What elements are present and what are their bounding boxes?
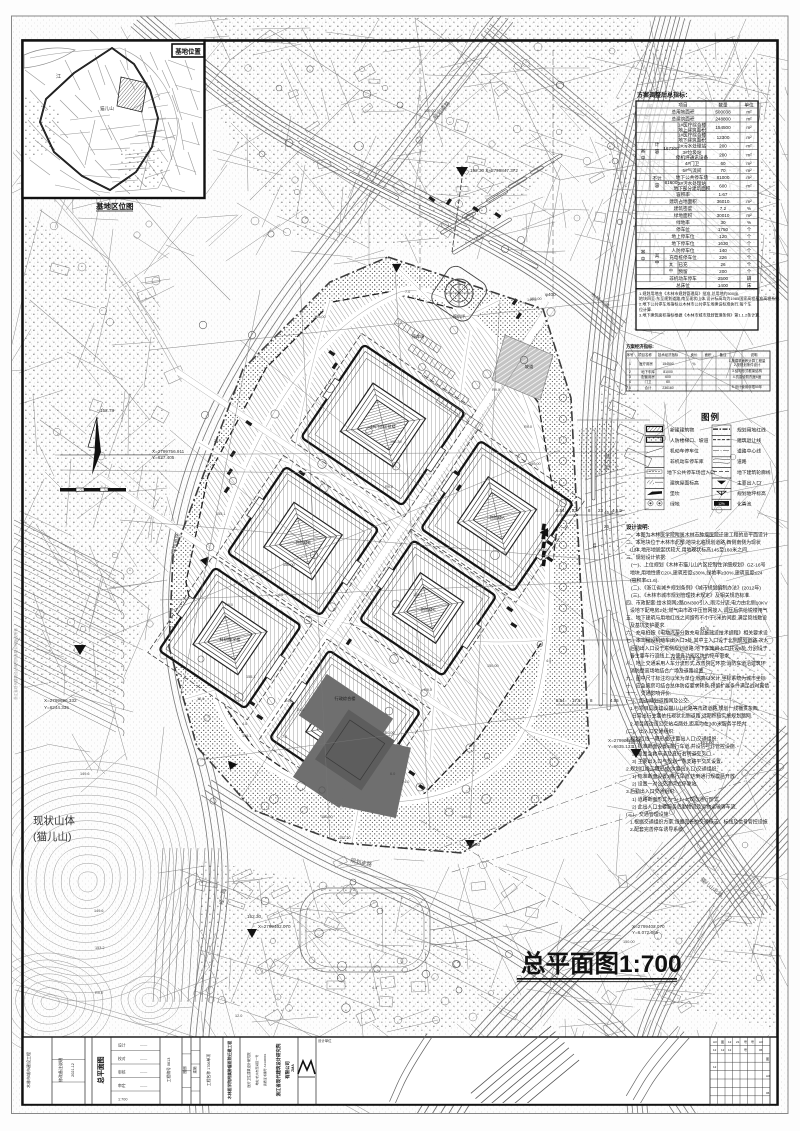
svg-text:木林市城市建设工程: 木林市城市建设工程 — [25, 1052, 31, 1088]
svg-text:2021.12: 2021.12 — [71, 1063, 75, 1077]
svg-text:26: 26 — [720, 262, 726, 267]
svg-text:150.00: 150.00 — [424, 109, 436, 113]
svg-text:(三)、交通管理设施:: (三)、交通管理设施: — [626, 811, 670, 818]
svg-text:4: 4 — [629, 380, 631, 384]
svg-text:2.规划红线二期形成(次要出入口)交通组织:: 2.规划红线二期形成(次要出入口)交通组织: — [626, 766, 718, 773]
svg-text:30: 30 — [720, 220, 726, 225]
svg-text:建筑退让线: 建筑退让线 — [737, 437, 761, 444]
svg-text:六、充电桩按《电动汽车分散充电设施建设技术规程》相关要求设: 六、充电桩按《电动汽车分散充电设施建设技术规程》相关要求设 — [626, 630, 768, 637]
svg-text:155.1: 155.1 — [216, 512, 226, 516]
svg-text:150.00: 150.00 — [623, 940, 635, 944]
svg-text:X=2799756.911: X=2799756.911 — [152, 449, 185, 454]
svg-text:5.设计使用年限50年: 5.设计使用年限50年 — [732, 384, 763, 389]
svg-text:地下公共停车场: 地下公共停车场 — [676, 174, 709, 181]
svg-text:个: 个 — [747, 241, 752, 246]
svg-text:2.按规划条件设计: 2.按规划条件设计 — [734, 362, 761, 367]
svg-text:R9.0: R9.0 — [524, 425, 532, 429]
svg-text:行政综合楼: 行政综合楼 — [335, 695, 356, 702]
svg-text:图例: 图例 — [701, 412, 720, 422]
svg-text:中: 中 — [655, 259, 660, 266]
svg-text:停车位: 停车位 — [676, 226, 690, 233]
svg-text:绿地面积: 绿地面积 — [674, 212, 693, 219]
svg-text:木林医学院附属肿瘤医院迁建工程: 木林医学院附属肿瘤医院迁建工程 — [227, 1041, 232, 1100]
svg-text:200: 200 — [719, 152, 727, 157]
svg-text:(一)、周边规划道路网及公交:: (一)、周边规划道路网及公交: — [626, 698, 689, 705]
svg-text:停车场: 停车场 — [412, 333, 425, 340]
svg-text:个: 个 — [747, 234, 752, 239]
svg-text:绿地: 绿地 — [670, 501, 680, 508]
svg-text:Y=6244.335: Y=6244.335 — [44, 705, 69, 710]
svg-text:m²: m² — [746, 135, 752, 140]
svg-text:12.0: 12.0 — [197, 697, 204, 701]
svg-text:基地位置: 基地位置 — [174, 47, 201, 56]
svg-text:6.0: 6.0 — [390, 772, 395, 776]
svg-text:21: 21 — [736, 1040, 740, 1044]
svg-text:150.00: 150.00 — [529, 462, 541, 466]
svg-text:住院楼C: 住院楼C — [420, 606, 436, 613]
svg-text:1.根据交通组织方案,设置完善的交通标志、标线及信号管控设施: 1.根据交通组织方案,设置完善的交通标志、标线及信号管控设施 — [630, 818, 768, 825]
svg-text:60: 60 — [720, 161, 726, 166]
svg-text:数量: 数量 — [718, 101, 728, 108]
svg-text:机动车停车位: 机动车停车位 — [670, 448, 699, 455]
svg-text:152.30: 152.30 — [339, 836, 351, 840]
svg-text:项目名称: 项目名称 — [638, 352, 652, 357]
svg-text:1:700: 1:700 — [118, 1098, 128, 1102]
svg-text:四、市政配套:给水管网2路DN300引入,雨污分流;电力由北: 四、市政配套:给水管网2路DN300引入,雨污分流;电力由北侧10KV — [626, 600, 768, 607]
svg-text:36010: 36010 — [717, 199, 730, 204]
svg-text:3.后勤出入口交通组织:: 3.后勤出入口交通组织: — [626, 788, 675, 795]
svg-text:m²: m² — [746, 199, 752, 204]
svg-text:一、本图为木林医学院附属木林市肿瘤医院迁建工程的总平面设计: 一、本图为木林医学院附属木林市肿瘤医院迁建工程的总平面设计 — [626, 532, 768, 539]
svg-text:图: 图 — [721, 1040, 724, 1044]
svg-text:3.地下建筑面积指标根据《木林市城市规划管理条例》第1.1.: 3.地下建筑面积指标根据《木林市城市规划管理条例》第1.1.2条计算. — [639, 311, 760, 317]
svg-text:12: 12 — [713, 1048, 717, 1052]
svg-text:1.规划用地由《木林市规划管理局》批准,总用地约500亩,: 1.规划用地由《木林市规划管理局》批准,总用地约500亩, — [639, 290, 739, 296]
svg-text:3.结构形式框架结构: 3.结构形式框架结构 — [732, 368, 763, 373]
svg-text:辆: 辆 — [747, 275, 752, 282]
svg-text:150.00: 150.00 — [383, 731, 395, 735]
svg-text:2.配套完善停车诱导系统.: 2.配套完善停车诱导系统. — [630, 826, 684, 833]
svg-text:道路: 道路 — [737, 458, 747, 465]
svg-text:7.0: 7.0 — [405, 290, 410, 294]
svg-text:12%: 12% — [718, 502, 725, 506]
svg-text:R9.0: R9.0 — [424, 688, 432, 692]
svg-text:图别: 图别 — [182, 1066, 187, 1074]
svg-text:工程名称 1706单项: 工程名称 1706单项 — [206, 1054, 211, 1086]
svg-text:2.项目周边设公交站点两处,距离均在300米服务半径内.: 2.项目周边设公交站点两处,距离均在300米服务半径内. — [630, 720, 748, 727]
svg-text:1.与项目同步建设猫儿山北路等市政道路,规划一线横贯东西,: 1.与项目同步建设猫儿山北路等市政道路,规划一线横贯东西, — [630, 705, 759, 712]
svg-text:总床位: 总床位 — [676, 282, 690, 289]
svg-text:149.6: 149.6 — [461, 815, 471, 819]
svg-text:中: 中 — [641, 154, 646, 161]
svg-text:日常出行主要依托现状北侧道路,远期积极实施规划路网.: 日常出行主要依托现状北侧道路,远期积极实施规划路网. — [632, 713, 752, 720]
svg-text:4.5: 4.5 — [546, 659, 551, 663]
svg-text:%: % — [747, 220, 751, 225]
svg-text:120: 120 — [719, 234, 727, 239]
svg-text:(二)、《浙江省城乡规划条例》《城市规划编制办法》(2012: (二)、《浙江省城乡规划条例》《城市规划编制办法》(2012年) — [631, 584, 761, 591]
svg-text:医疗卫生建筑设计研究院: 医疗卫生建筑设计研究院 — [246, 1052, 251, 1088]
svg-text:后勤出入口设于东侧规划道路;地下车库出入口共设6处,分别设于: 后勤出入口设于东侧规划道路;地下车库出入口共设6处,分别设于 — [630, 645, 768, 652]
svg-text:4#门卫: 4#门卫 — [685, 160, 700, 167]
svg-text:149.6: 149.6 — [527, 298, 537, 302]
svg-text:资质证书编号 A1330001: 资质证书编号 A1330001 — [262, 1053, 267, 1086]
svg-text:A3: A3 — [766, 1074, 770, 1078]
svg-text:1) 标准断面设置3条行车道,达到通行规模后开放.: 1) 标准断面设置3条行车道,达到通行规模后开放. — [632, 773, 736, 780]
svg-text:R9.0: R9.0 — [385, 485, 393, 489]
svg-text:1.规划红线一期形成(主要出入口)交通组织:: 1.规划红线一期形成(主要出入口)交通组织: — [626, 735, 718, 742]
svg-text:图: 图 — [766, 1057, 769, 1061]
svg-text:号: 号 — [751, 1039, 754, 1044]
svg-text:新建建筑物: 新建建筑物 — [670, 426, 694, 433]
svg-text:1) 道路断面形式为"1+1+1"双向通行形式.: 1) 道路断面形式为"1+1+1"双向通行形式. — [632, 796, 720, 803]
svg-text:三、规划设计依据:: 三、规划设计依据: — [626, 554, 666, 561]
svg-text:150.00: 150.00 — [321, 815, 333, 819]
svg-text:序号: 序号 — [627, 352, 634, 357]
svg-text:规划地坪标高: 规划地坪标高 — [737, 490, 766, 497]
svg-text:3: 3 — [629, 375, 631, 379]
svg-text:1) 标准断面设置3条行车道,并设信号灯管控设施.: 1) 标准断面设置3条行车道,并设信号灯管控设施. — [632, 743, 736, 750]
svg-text:152.30: 152.30 — [247, 914, 261, 919]
svg-text:堡坎: 堡坎 — [670, 490, 680, 497]
svg-text:技术经济指标: 技术经济指标 — [658, 352, 679, 357]
svg-text:5#气流间: 5#气流间 — [683, 167, 702, 174]
svg-text:地下公共停车场出入口: 地下公共停车场出入口 — [667, 469, 715, 476]
svg-text:非机动车停车库: 非机动车停车库 — [670, 458, 704, 465]
svg-text:m²: m² — [746, 109, 752, 114]
svg-text:建筑屋面标高: 建筑屋面标高 — [670, 479, 699, 486]
svg-text:7.0: 7.0 — [282, 735, 287, 739]
svg-text:建筑占地面积: 建筑占地面积 — [669, 198, 697, 205]
svg-text:门卫: 门卫 — [645, 379, 652, 384]
svg-text:个: 个 — [747, 269, 752, 274]
svg-text:地下停车位: 地下停车位 — [672, 240, 695, 247]
svg-text:(猫儿山): (猫儿山) — [33, 830, 72, 843]
svg-text:81000: 81000 — [717, 175, 730, 180]
svg-text:地块四至:东至规划道路,南至现状山体,设计标高均为1985国: 地块四至:东至规划道路,南至现状山体,设计标高均为1985国家高程基准高程系统. — [639, 295, 780, 301]
svg-text:7.2: 7.2 — [720, 206, 727, 211]
svg-text:4.抗震设防烈度6度: 4.抗震设防烈度6度 — [733, 374, 762, 379]
svg-text:m²: m² — [746, 168, 752, 173]
svg-text:149.6: 149.6 — [94, 909, 104, 913]
svg-text:个: 个 — [747, 248, 752, 253]
svg-text:154500: 154500 — [715, 125, 731, 130]
svg-text:中: 中 — [669, 267, 673, 273]
svg-text:医疗用房: 医疗用房 — [639, 361, 653, 366]
svg-text:号: 号 — [744, 1039, 747, 1044]
svg-text:23: 23 — [598, 508, 603, 513]
svg-text:人防停车位: 人防停车位 — [672, 247, 695, 254]
svg-text:2) 设置急救车道及直行右转道交叉口.: 2) 设置急救车道及直行右转道交叉口. — [632, 751, 712, 758]
svg-text:81000: 81000 — [663, 370, 673, 374]
svg-text:4.5: 4.5 — [278, 593, 283, 597]
svg-text:九、图中尺寸标注均以米为单位,标高以米计,坐标系统为城市坐标: 九、图中尺寸标注均以米为单位,标高以米计,坐标系统为城市坐标 — [626, 675, 766, 682]
svg-text:配套用房: 配套用房 — [641, 374, 655, 379]
svg-text:设计单位: 设计单位 — [318, 1038, 332, 1043]
svg-text:24.0: 24.0 — [214, 439, 221, 443]
svg-text:化粪池: 化粪池 — [737, 501, 752, 508]
svg-text:(二)、出入口交通组织:: (二)、出入口交通组织: — [626, 728, 675, 735]
svg-text:计: 计 — [655, 141, 660, 148]
svg-text:设计: 设计 — [118, 1043, 126, 1048]
svg-text:1: 1 — [629, 362, 631, 366]
svg-text:1750: 1750 — [718, 227, 729, 232]
svg-text:面积: 面积 — [705, 352, 712, 357]
svg-text:25: 25 — [604, 524, 610, 529]
svg-text:1400: 1400 — [718, 283, 729, 288]
svg-text:——: —— — [140, 1084, 148, 1088]
svg-text:23: 23 — [572, 508, 577, 513]
svg-text:猫儿山: 猫儿山 — [100, 105, 114, 112]
svg-text:位计算.: 位计算. — [639, 306, 652, 312]
svg-text:45.5: 45.5 — [700, 626, 709, 631]
svg-text:2) 此出入口主要服务后勤物流及污物运输等车流.: 2) 此出入口主要服务后勤物流及污物运输等车流. — [632, 803, 737, 810]
svg-text:12: 12 — [728, 1048, 732, 1052]
svg-text:号: 号 — [744, 1047, 747, 1052]
svg-text:非机动车停车: 非机动车停车 — [669, 275, 697, 282]
svg-text:科研教学楼: 科研教学楼 — [220, 636, 241, 643]
svg-text:X=2799402.070: X=2799402.070 — [632, 924, 665, 929]
svg-text:70: 70 — [720, 168, 726, 173]
svg-text:167300: 167300 — [663, 146, 679, 151]
svg-text:住院楼A: 住院楼A — [489, 514, 505, 521]
svg-text:人防楼梯口、坡道: 人防楼梯口、坡道 — [670, 437, 709, 444]
svg-text:A3: A3 — [759, 1040, 763, 1044]
svg-text:150.00: 150.00 — [283, 563, 295, 567]
svg-text:X=2799696.332: X=2799696.332 — [44, 698, 77, 703]
svg-text:1#门诊医技楼: 1#门诊医技楼 — [370, 423, 396, 430]
svg-text:预留: 预留 — [678, 268, 688, 275]
svg-text:说明: 说明 — [751, 352, 758, 357]
svg-text:规划用地红线: 规划用地红线 — [737, 426, 766, 433]
svg-text:建施: 建施 — [192, 1066, 197, 1074]
svg-text:ZMA: ZMA — [291, 1064, 295, 1072]
svg-text:个: 个 — [747, 227, 752, 232]
svg-text:地下部分建筑面积: 地下部分建筑面积 — [674, 185, 711, 192]
svg-text:总建筑面积: 总建筑面积 — [672, 115, 695, 122]
svg-text:十、应急病房可结合总体防疫要求转换,预留扩展条件满足战时霬情: 十、应急病房可结合总体防疫要求转换,预留扩展条件满足战时霬情 — [626, 683, 769, 690]
svg-text:个: 个 — [747, 255, 752, 260]
svg-text:12.0: 12.0 — [235, 1014, 242, 1018]
svg-text:m²: m² — [746, 175, 752, 180]
svg-text:基地区位图: 基地区位图 — [95, 201, 134, 211]
svg-text:方案经济指标:: 方案经济指标: — [626, 343, 654, 350]
svg-text:个: 个 — [747, 262, 752, 267]
svg-text:4.55: 4.55 — [610, 698, 619, 703]
svg-text:24.0: 24.0 — [402, 780, 409, 784]
svg-text:m²: m² — [746, 213, 752, 218]
svg-text:浙江省现代建筑设计研究院: 浙江省现代建筑设计研究院 — [275, 1043, 282, 1096]
svg-text:审核: 审核 — [118, 1070, 126, 1075]
svg-text:——: —— — [140, 1071, 148, 1075]
svg-text:154500: 154500 — [662, 362, 673, 366]
svg-text:152.78: 152.78 — [100, 408, 114, 413]
svg-text:m²: m² — [746, 116, 752, 121]
svg-text:17.5: 17.5 — [572, 698, 581, 703]
svg-text:140: 140 — [719, 248, 727, 253]
svg-text:(容积率≤1.6).: (容积率≤1.6). — [630, 577, 659, 584]
svg-text:总平面图: 总平面图 — [96, 1056, 105, 1083]
svg-text:155.1: 155.1 — [413, 593, 423, 597]
svg-text:坡道: 坡道 — [525, 363, 534, 370]
svg-text:八、地上交通采用人车分流形式,改善院区环境;消防车道沿建筑环: 八、地上交通采用人车分流形式,改善院区环境;消防车道沿建筑环 — [626, 660, 766, 667]
svg-text:12300: 12300 — [717, 135, 730, 140]
svg-text:3) 主要出入口与规划一条支路平交叉设置.: 3) 主要出入口与规划一条支路平交叉设置. — [632, 758, 722, 765]
svg-text:二、本地块位于木林市北部,地块北临规划道路,西侧南侧为现状: 二、本地块位于木林市北部,地块北临规划道路,西侧南侧为现状 — [626, 539, 761, 546]
svg-text:4.5: 4.5 — [372, 986, 377, 990]
svg-text:m²: m² — [746, 144, 752, 149]
svg-text:不计: 不计 — [652, 175, 662, 182]
svg-text:226: 226 — [719, 255, 727, 260]
svg-text:2#污水处理站: 2#污水处理站 — [678, 143, 706, 150]
svg-text:m²: m² — [746, 125, 752, 130]
svg-text:200: 200 — [719, 144, 727, 149]
svg-text:容: 容 — [655, 182, 660, 189]
svg-text:浙江省现代建筑设计研究院有限公司版权所有: 浙江省现代建筑设计研究院有限公司版权所有 — [13, 628, 18, 700]
svg-text:12: 12 — [728, 1040, 732, 1044]
svg-text:Y=6635.133: Y=6635.133 — [608, 744, 633, 749]
svg-text:06: 06 — [759, 1048, 763, 1052]
svg-text:五、地下建筑与用地红线之间留有不小于5米的间距,满足管线敷设: 五、地下建筑与用地红线之间留有不小于5米的间距,满足管线敷设 — [626, 615, 767, 622]
svg-text:Y=637.405: Y=637.405 — [152, 455, 175, 460]
svg-text:m²: m² — [746, 152, 752, 157]
svg-text:七、本工程设机动车出入口3处,其中主入口设于北侧规划道路,次: 七、本工程设机动车出入口3处,其中主入口设于北侧规划道路,次入 — [626, 637, 768, 644]
svg-text:审定: 审定 — [118, 1083, 126, 1088]
svg-text:道路中心线: 道路中心线 — [737, 448, 761, 455]
svg-text:地下建筑轮廓线: 地下建筑轮廓线 — [737, 469, 771, 476]
svg-text:江: 江 — [56, 73, 61, 80]
svg-text:各主要车行流线上,方便各功能区块的停车需求.: 各主要车行流线上,方便各功能区块的停车需求. — [630, 652, 731, 659]
svg-text:设计说明:: 设计说明: — [626, 523, 650, 531]
svg-text:X=2799402.070: X=2799402.070 — [258, 924, 291, 929]
svg-text:1630: 1630 — [718, 241, 729, 246]
svg-text:45.5: 45.5 — [604, 510, 613, 515]
svg-text:R9.0: R9.0 — [492, 388, 500, 392]
svg-text:149.6: 149.6 — [80, 772, 90, 776]
svg-text:其: 其 — [669, 262, 673, 267]
svg-text:150.00: 150.00 — [487, 664, 499, 668]
svg-text:248800: 248800 — [715, 116, 731, 121]
svg-text:500038: 500038 — [715, 109, 731, 114]
svg-text:600: 600 — [665, 375, 671, 379]
svg-text:152.30: 152.30 — [466, 842, 480, 847]
svg-text:中: 中 — [641, 255, 646, 262]
svg-text:A3: A3 — [713, 1040, 717, 1044]
svg-text:Y=6.072.665: Y=6.072.665 — [632, 930, 659, 935]
svg-text:24.0: 24.0 — [285, 699, 292, 703]
svg-text:149.6: 149.6 — [538, 548, 548, 552]
svg-text:总平面图1:700: 总平面图1:700 — [521, 950, 682, 978]
svg-text:5.54: 5.54 — [556, 508, 565, 513]
svg-text:容积率: 容积率 — [676, 191, 690, 198]
svg-text:总用地面积: 总用地面积 — [672, 108, 695, 115]
svg-text:12.0: 12.0 — [384, 363, 391, 367]
svg-text:12: 12 — [713, 1065, 717, 1069]
svg-text:236160: 236160 — [662, 386, 673, 390]
svg-text:45: 45 — [592, 543, 597, 548]
svg-text:60: 60 — [666, 380, 670, 384]
svg-text:地址:杭州市西湖区一号: 地址:杭州市西湖区一号 — [254, 1055, 259, 1086]
svg-text:%: % — [747, 206, 751, 211]
svg-text:地下建筑面积: 地下建筑面积 — [678, 137, 706, 144]
svg-text:修改备注说明: 修改备注说明 — [57, 1058, 63, 1082]
svg-text:152.30: 152.30 — [390, 440, 402, 444]
svg-text:4.5: 4.5 — [242, 722, 247, 726]
svg-text:m²: m² — [746, 184, 752, 189]
svg-text:4.5 5: 4.5 5 — [612, 508, 622, 513]
svg-text:地上停车位: 地上停车位 — [672, 233, 695, 240]
svg-text:1.67: 1.67 — [719, 192, 728, 197]
svg-text:2500: 2500 — [718, 276, 729, 281]
svg-text:152.30 X=2799847.372: 152.30 X=2799847.372 — [470, 168, 518, 173]
svg-text:(三)、《木林市城市规划管理技术规定》及相关规范标准.: (三)、《木林市城市规划管理技术规定》及相关规范标准. — [631, 592, 751, 599]
svg-text:150.00: 150.00 — [314, 315, 326, 319]
svg-text:155.1: 155.1 — [246, 675, 256, 679]
svg-text:合计: 合计 — [645, 385, 652, 390]
svg-text:200: 200 — [719, 269, 727, 274]
svg-text:(一)、上位规划《木林市猫儿山片区控制性详细规划》GZ-16: (一)、上位规划《木林市猫儿山片区控制性详细规划》GZ-16号 — [631, 562, 766, 569]
svg-text:主要出入口: 主要出入口 — [737, 479, 761, 486]
svg-text:校对: 校对 — [118, 1056, 126, 1061]
svg-text:建筑密度: 建筑密度 — [674, 205, 693, 212]
svg-text:设地下配电房2处;燃气由市政中压管网接入,调压后供给锐楼用气: 设地下配电房2处;燃气由市政中压管网接入,调压后供给锐楼用气 — [630, 607, 768, 614]
svg-text:地块,用地性质C2/A,建筑密度≤30%,绿地率≥30%,建: 地块,用地性质C2/A,建筑密度≤30%,绿地率≥30%,建筑高度≤24 — [630, 569, 763, 576]
svg-text:十一、交通影响评价:: 十一、交通影响评价: — [626, 690, 671, 697]
svg-text:5: 5 — [629, 386, 631, 390]
svg-text:工程编号 0613: 工程编号 0613 — [166, 1058, 171, 1083]
svg-text:现状山体: 现状山体 — [33, 814, 75, 827]
svg-text:06: 06 — [766, 1091, 770, 1095]
svg-text:30010: 30010 — [717, 213, 730, 218]
svg-text:153.2: 153.2 — [95, 946, 105, 950]
svg-text:5.54: 5.54 — [556, 698, 565, 703]
svg-text:停机坪通讯设备: 停机坪通讯设备 — [676, 154, 709, 161]
svg-text:12: 12 — [721, 1048, 725, 1052]
svg-text:床: 床 — [747, 282, 752, 289]
svg-text:绿地率: 绿地率 — [676, 219, 690, 226]
svg-text:备注: 备注 — [720, 352, 727, 357]
svg-text:24.0: 24.0 — [297, 708, 304, 712]
svg-text:及基坑支护要求.: 及基坑支护要求. — [630, 622, 666, 629]
svg-text:方案调整后总指标：: 方案调整后总指标： — [637, 91, 691, 99]
svg-text:卖价: 卖价 — [691, 352, 698, 357]
svg-text:充电桩停车位: 充电桩停车位 — [669, 254, 697, 261]
svg-text:m²: m² — [746, 161, 752, 166]
svg-text:有限公司: 有限公司 — [284, 1061, 291, 1079]
svg-text:——: —— — [140, 1044, 148, 1048]
svg-text:155.1: 155.1 — [242, 734, 252, 738]
svg-text:2.地下公共停车场指标以木林市公共停车场建设标准执行,每个车: 2.地下公共停车场指标以木林市公共停车场建设标准执行,每个车 — [639, 301, 751, 307]
svg-text:81600: 81600 — [665, 180, 678, 185]
svg-text:已充: 已充 — [678, 261, 688, 268]
svg-text:2: 2 — [629, 370, 631, 374]
svg-text:容: 容 — [655, 148, 660, 155]
svg-text:单位: 单位 — [744, 101, 754, 108]
svg-text:地下车库: 地下车库 — [641, 369, 655, 374]
svg-text:2) 设置一对公交港湾式停靠站.: 2) 设置一对公交港湾式停靠站. — [632, 781, 698, 788]
svg-text:R9.0: R9.0 — [225, 603, 233, 607]
svg-text:R9.0: R9.0 — [95, 991, 103, 995]
svg-text:——: —— — [140, 1057, 148, 1061]
svg-text:φ400: φ400 — [545, 292, 556, 297]
svg-text:山体,地形地貌起伏较大,用地现状标高145至160米之间.: 山体,地形地貌起伏较大,用地现状标高145至160米之间. — [630, 547, 748, 554]
svg-text:600: 600 — [719, 184, 727, 189]
svg-text:24.0: 24.0 — [427, 663, 434, 667]
svg-text:消防登高场地结合广场及道路设置.: 消防登高场地结合广场及道路设置. — [630, 667, 705, 674]
